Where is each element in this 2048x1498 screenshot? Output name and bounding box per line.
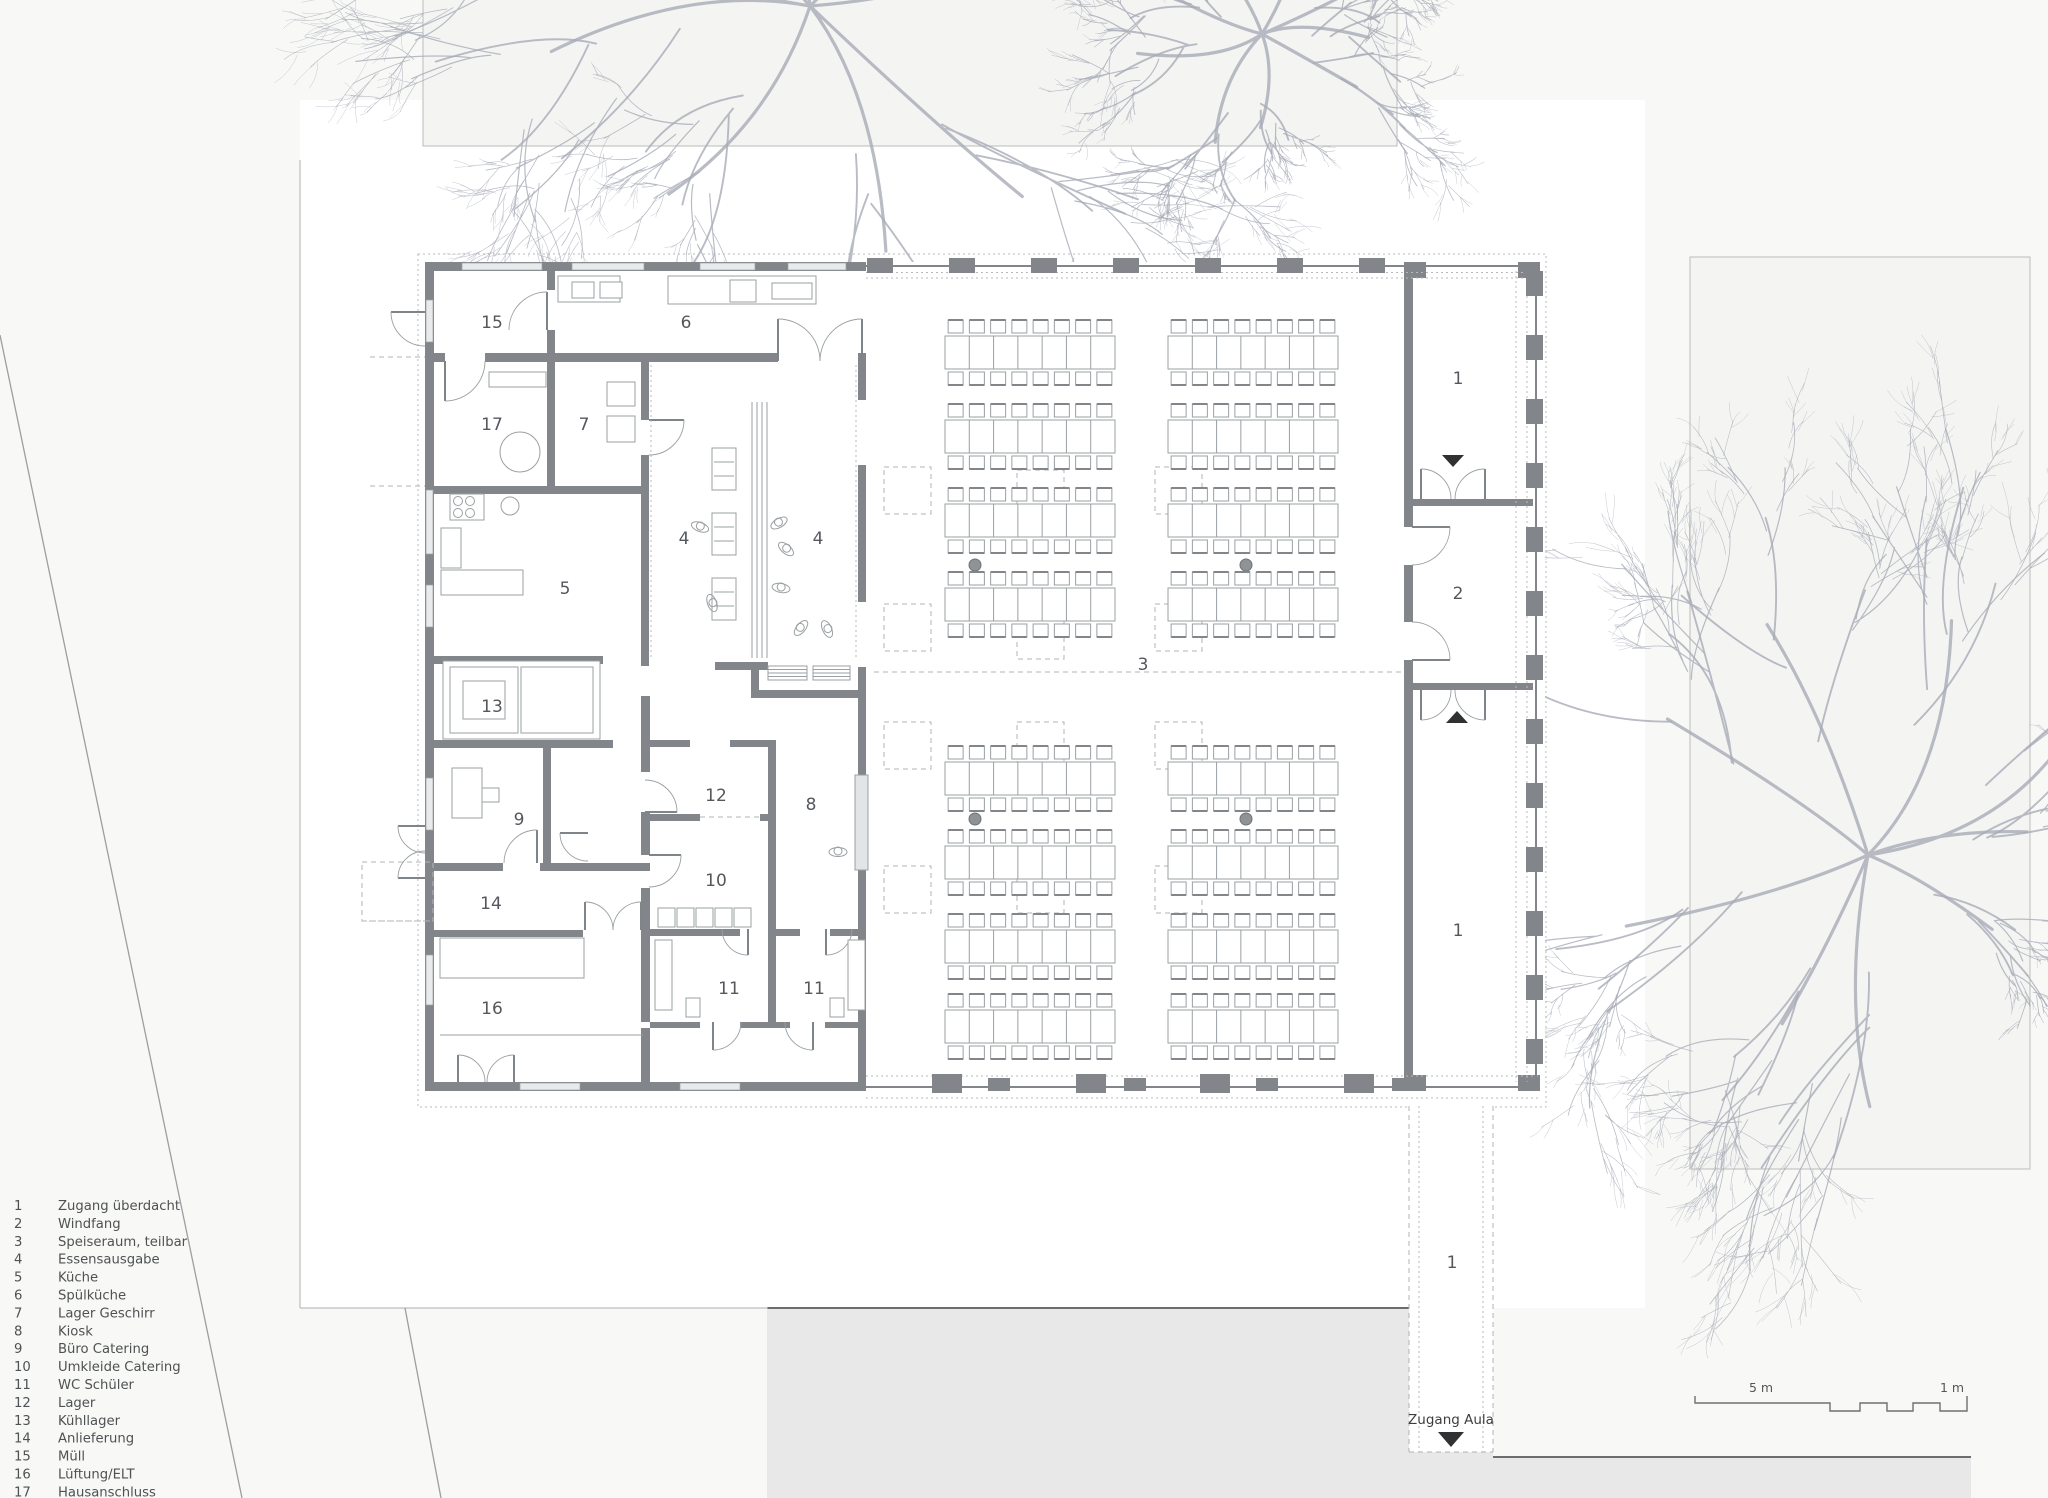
legend-number: 1 (14, 1199, 22, 1214)
legend-item: 9Büro Catering (14, 1342, 149, 1357)
legend-label: Zugang überdacht (58, 1199, 180, 1214)
legend-item: 1Zugang überdacht (14, 1199, 180, 1214)
legend-item: 10Umkleide Catering (14, 1360, 181, 1375)
legend-number: 13 (14, 1414, 31, 1429)
scale-bar-line (1695, 1396, 1967, 1411)
legend-number: 2 (14, 1217, 22, 1232)
room-label: 4 (813, 529, 824, 549)
legend-number: 10 (14, 1360, 31, 1375)
legend-label: Umkleide Catering (58, 1360, 181, 1375)
legend-number: 7 (14, 1306, 22, 1321)
legend-label: Spülküche (58, 1289, 126, 1304)
room-label: 1 (1453, 369, 1464, 389)
room-label: 11 (718, 979, 740, 999)
room-label: 12 (705, 786, 727, 806)
legend-label: Windfang (58, 1217, 121, 1232)
room-label: 6 (681, 313, 692, 333)
legend-item: 15Müll (14, 1450, 85, 1465)
legend-label: WC Schüler (58, 1378, 135, 1393)
legend-label: Kühllager (58, 1414, 121, 1429)
legend-number: 16 (14, 1468, 31, 1483)
legend-number: 4 (14, 1253, 22, 1268)
legend-label: Essensausgabe (58, 1253, 160, 1268)
legend-number: 15 (14, 1450, 31, 1465)
room-label: 4 (679, 529, 690, 549)
legend-label: Lager Geschirr (58, 1306, 155, 1321)
room-label: 14 (480, 894, 502, 914)
legend-number: 17 (14, 1485, 31, 1498)
legend-label: Lager (58, 1396, 96, 1411)
legend-number: 5 (14, 1271, 22, 1286)
room-label: 9 (514, 810, 525, 830)
room-label: 5 (560, 579, 571, 599)
room-label: 8 (806, 795, 817, 815)
legend-item: 11WC Schüler (14, 1378, 135, 1393)
legend-item: 4Essensausgabe (14, 1253, 160, 1268)
legend-number: 11 (14, 1378, 31, 1393)
legend: 1Zugang überdacht2Windfang3Speiseraum, t… (14, 1199, 188, 1498)
legend-item: 2Windfang (14, 1217, 121, 1232)
legend-label: Büro Catering (58, 1342, 149, 1357)
room-label: 2 (1453, 584, 1464, 604)
legend-number: 12 (14, 1396, 31, 1411)
legend-item: 8Kiosk (14, 1324, 93, 1339)
legend-item: 6Spülküche (14, 1289, 126, 1304)
room-label: 13 (481, 697, 503, 717)
room-label: 10 (705, 871, 727, 891)
legend-number: 6 (14, 1289, 22, 1304)
legend-item: 14Anlieferung (14, 1432, 134, 1447)
legend-label: Küche (58, 1271, 98, 1286)
legend-label: Kiosk (58, 1324, 93, 1339)
legend-label: Anlieferung (58, 1432, 134, 1447)
legend-item: 16Lüftung/ELT (14, 1468, 135, 1483)
scale-major-label: 5 m (1749, 1380, 1773, 1395)
room-label: 1 (1447, 1253, 1458, 1273)
room-label: 16 (481, 999, 503, 1019)
legend-label: Speiseraum, teilbar (58, 1235, 188, 1250)
entrance-label: Zugang Aula (1408, 1412, 1494, 1428)
legend-label: Müll (58, 1450, 85, 1465)
legend-label: Lüftung/ELT (58, 1468, 135, 1483)
legend-item: 13Kühllager (14, 1414, 121, 1429)
room-label: 11 (803, 979, 825, 999)
legend-number: 9 (14, 1342, 22, 1357)
legend-number: 8 (14, 1324, 22, 1339)
scale-minor-label: 1 m (1940, 1380, 1964, 1395)
legend-item: 7Lager Geschirr (14, 1306, 155, 1321)
legend-number: 14 (14, 1432, 31, 1447)
room-label: 1 (1453, 921, 1464, 941)
room-label: 15 (481, 313, 503, 333)
legend-label: Hausanschluss (58, 1485, 156, 1498)
legend-item: 3Speiseraum, teilbar (14, 1235, 188, 1250)
site-plan-canvas: 156177445313129810141111161211 1Zugang ü… (0, 0, 2048, 1498)
room-label: 7 (579, 415, 590, 435)
legend-number: 3 (14, 1235, 22, 1250)
legend-item: 12Lager (14, 1396, 96, 1411)
scale-bar: 5 m 1 m (1695, 1380, 1967, 1411)
legend-item: 5Küche (14, 1271, 98, 1286)
room-label: 17 (481, 415, 503, 435)
room-label: 3 (1138, 655, 1149, 675)
legend-item: 17Hausanschluss (14, 1485, 156, 1498)
